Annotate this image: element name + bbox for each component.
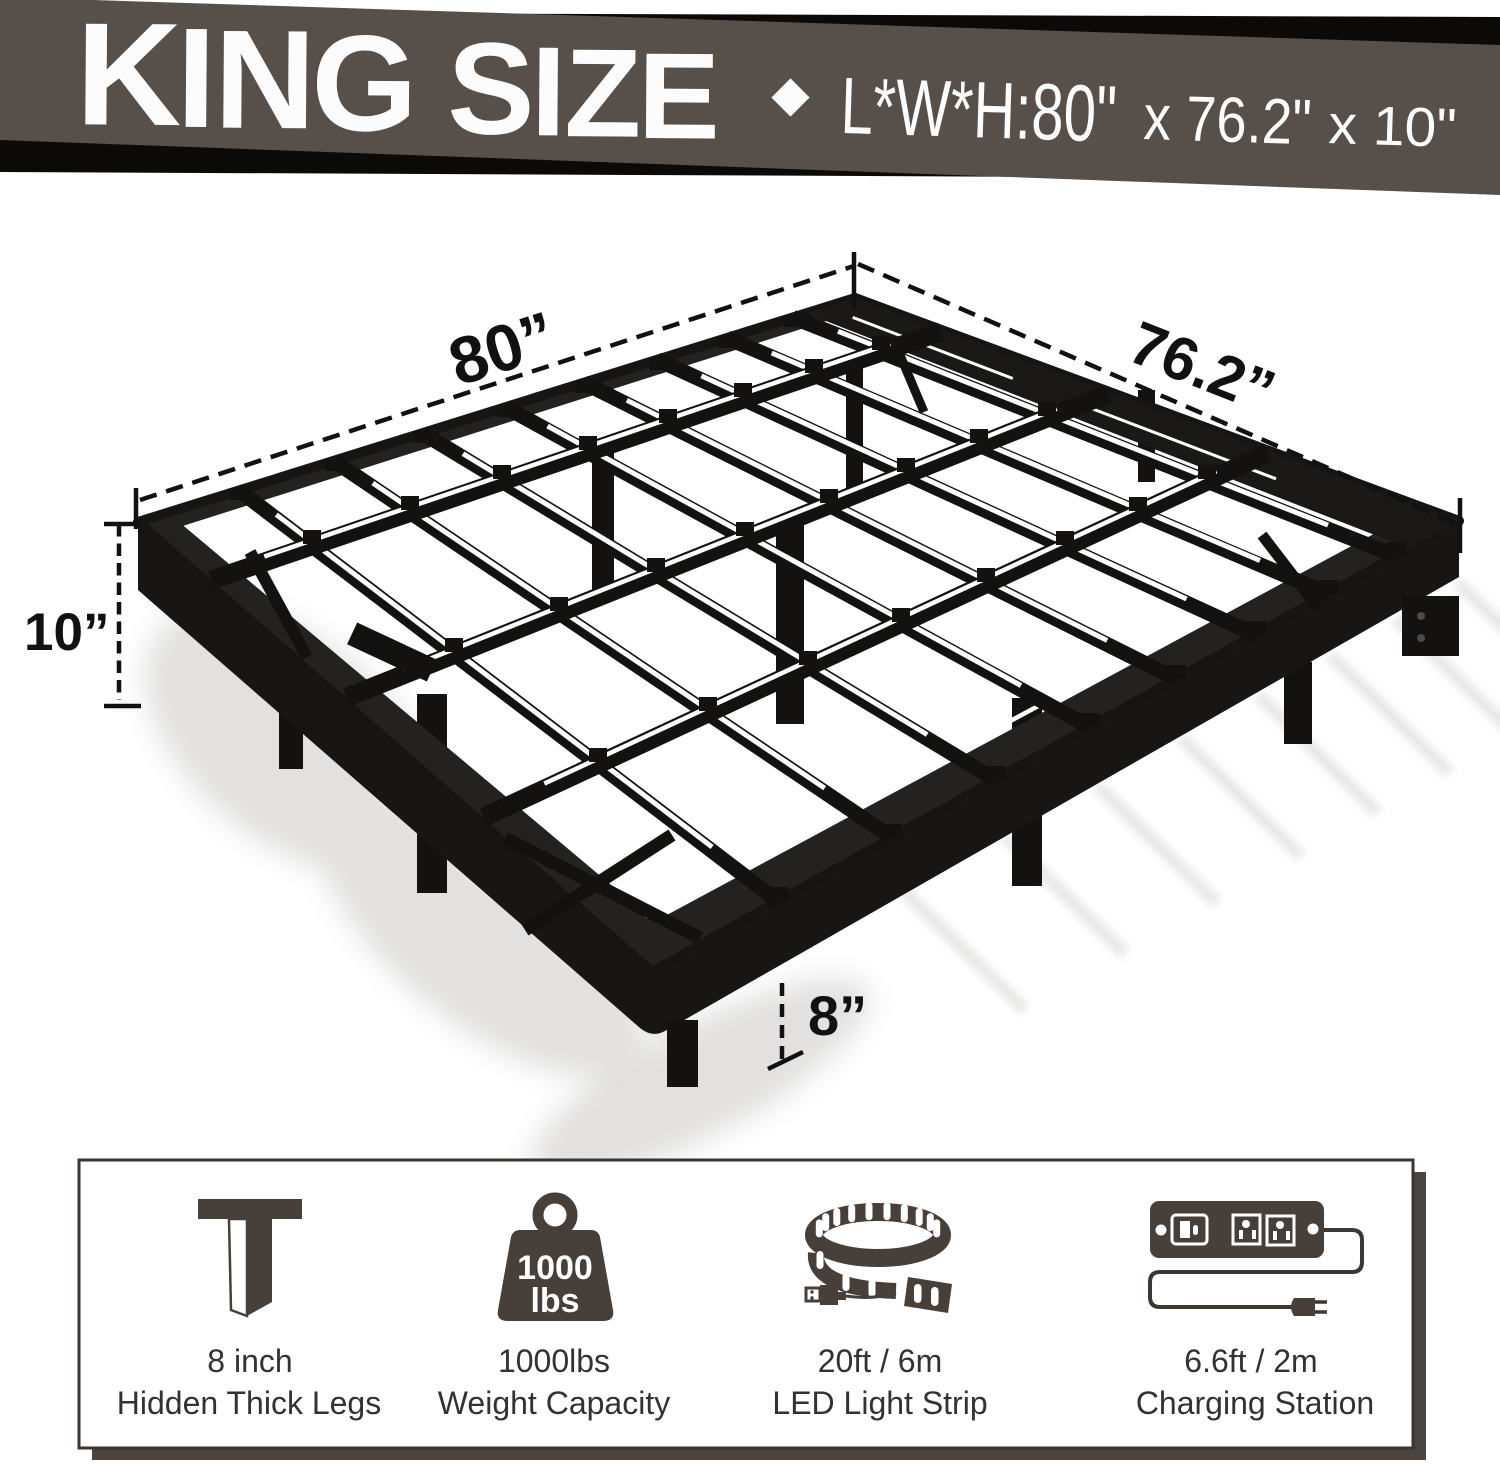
svg-text:Weight Capacity: Weight Capacity — [438, 1385, 670, 1421]
svg-text:L*W*H:80": L*W*H:80" — [839, 61, 1118, 159]
svg-text:1000lbs: 1000lbs — [498, 1343, 610, 1379]
svg-text:E: E — [638, 27, 721, 165]
svg-text:I: I — [530, 20, 566, 162]
svg-text:10”: 10” — [24, 603, 109, 662]
svg-text:K: K — [75, 0, 182, 157]
svg-text:Z: Z — [564, 22, 642, 164]
svg-text:S: S — [447, 15, 535, 162]
svg-text:I: I — [176, 0, 217, 158]
svg-text:20ft / 6m: 20ft / 6m — [818, 1343, 943, 1379]
svg-text:6.6ft / 2m: 6.6ft / 2m — [1184, 1343, 1317, 1379]
svg-text:G: G — [311, 6, 418, 160]
svg-text:LED Light Strip: LED Light Strip — [772, 1385, 987, 1421]
svg-text:8”: 8” — [808, 984, 867, 1047]
svg-text:Hidden Thick Legs: Hidden Thick Legs — [117, 1385, 381, 1421]
svg-text:8 inch: 8 inch — [207, 1343, 292, 1379]
svg-text:lbs: lbs — [530, 1282, 579, 1320]
svg-text:x 76.2": x 76.2" — [1143, 81, 1313, 158]
svg-text:x 10": x 10" — [1328, 93, 1458, 159]
svg-text:Charging Station: Charging Station — [1136, 1385, 1374, 1421]
svg-text:N: N — [214, 1, 317, 159]
